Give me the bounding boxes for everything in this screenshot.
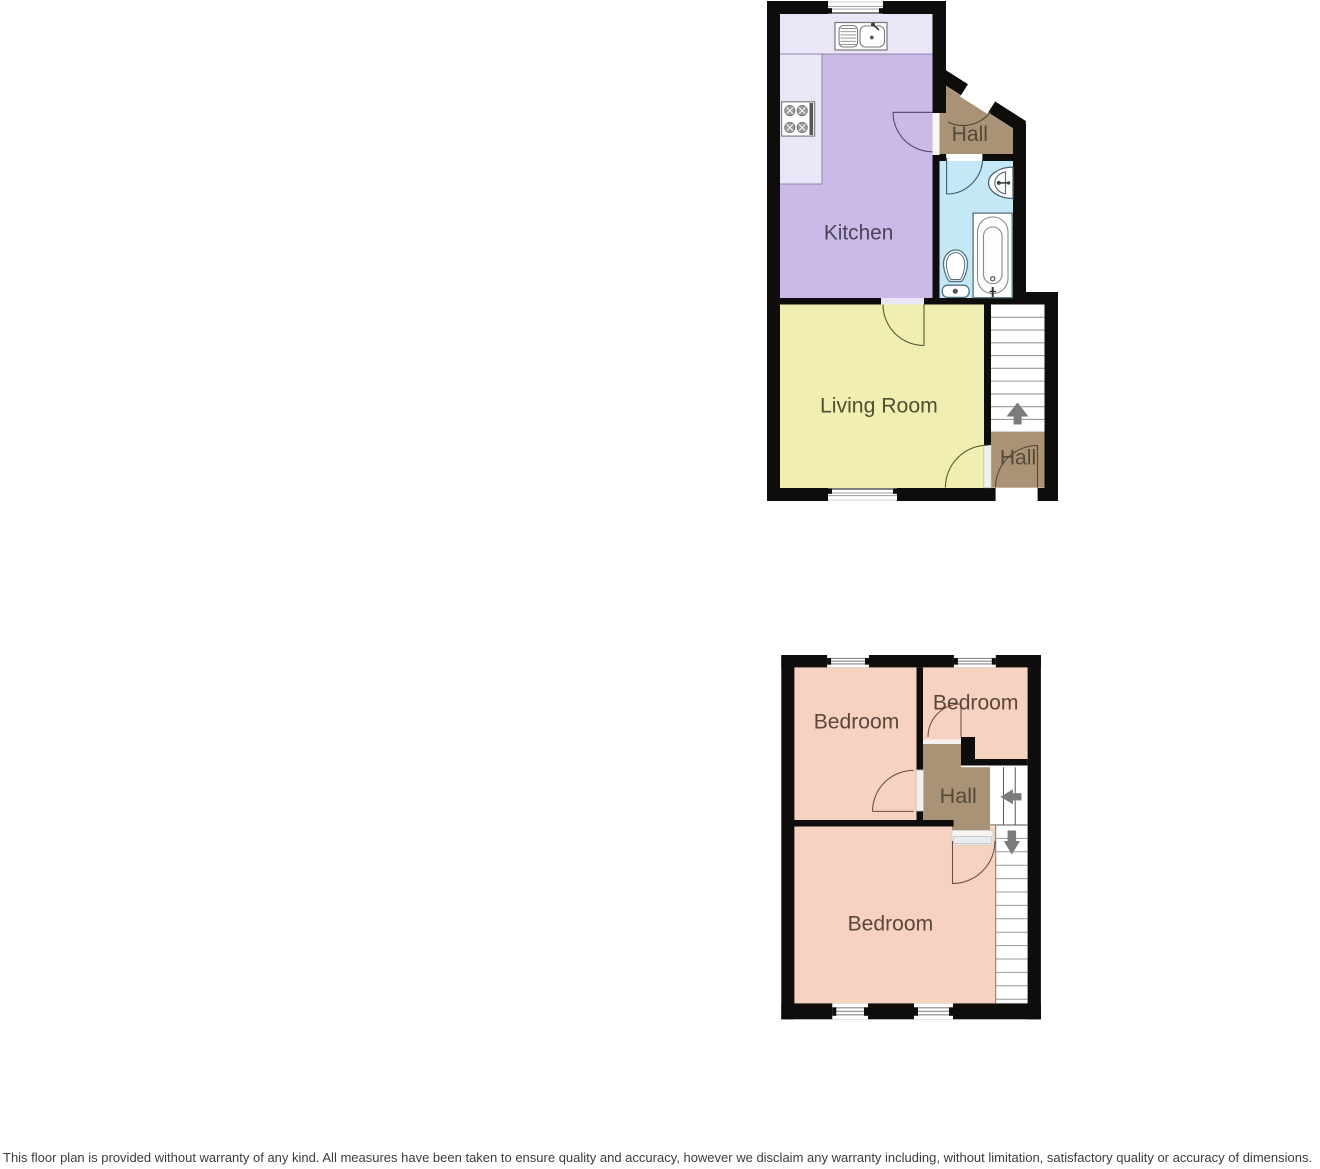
- svg-text:Bedroom: Bedroom: [933, 692, 1019, 715]
- svg-text:This floor plan is provided wi: This floor plan is provided without warr…: [3, 1150, 1312, 1165]
- svg-text:Hall: Hall: [1000, 447, 1036, 470]
- svg-text:Bedroom: Bedroom: [814, 711, 900, 734]
- svg-text:Bedroom: Bedroom: [848, 912, 934, 935]
- svg-text:Kitchen: Kitchen: [824, 222, 893, 245]
- svg-text:Living Room: Living Room: [820, 394, 938, 417]
- svg-text:Hall: Hall: [952, 123, 988, 146]
- svg-text:Hall: Hall: [940, 783, 977, 808]
